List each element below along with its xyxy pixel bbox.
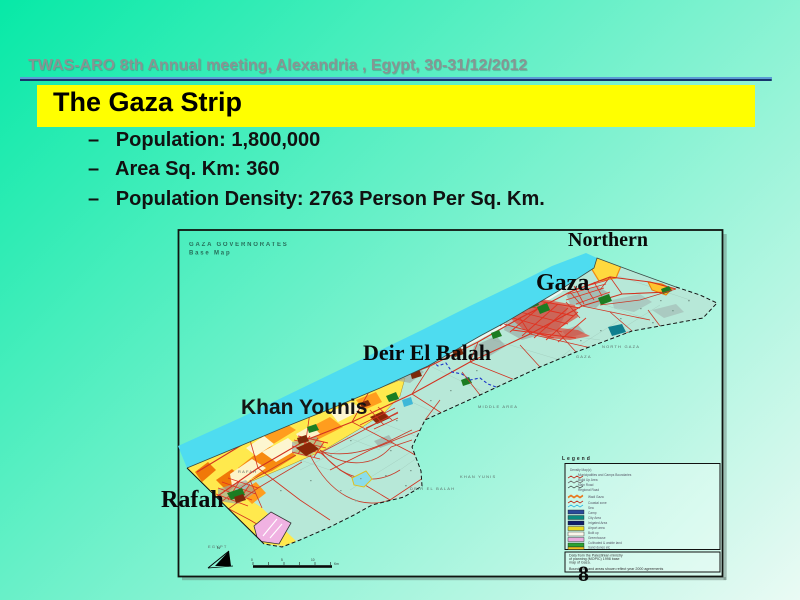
svg-text:Base Map: Base Map [189, 251, 231, 257]
svg-text:NORTH GAZA: NORTH GAZA [602, 344, 640, 349]
svg-text:Density Map(c): Density Map(c) [570, 468, 591, 472]
svg-text:Sand dunes etc: Sand dunes etc [588, 546, 611, 550]
svg-text:Deir El Balah: Deir El Balah [363, 340, 491, 365]
svg-text:Km: Km [334, 562, 339, 566]
svg-text:Build Up Area: Build Up Area [578, 478, 598, 482]
svg-text:Rafah: Rafah [161, 487, 224, 513]
svg-text:Gaza: Gaza [536, 270, 589, 296]
svg-text:GAZA: GAZA [576, 354, 592, 359]
svg-text:City Area: City Area [588, 516, 601, 520]
svg-text:Coastal zone: Coastal zone [588, 501, 607, 505]
svg-text:8: 8 [578, 561, 589, 586]
svg-text:Cultivated & arable land: Cultivated & arable land [588, 541, 622, 545]
svg-text:Northern: Northern [568, 229, 648, 251]
svg-text:MIDDLE AREA: MIDDLE AREA [478, 404, 518, 409]
svg-text:Built up: Built up [588, 531, 599, 535]
svg-text:Camp: Camp [588, 511, 597, 515]
svg-text:Khan Younis: Khan Younis [241, 396, 367, 419]
svg-text:Airport area: Airport area [588, 526, 605, 530]
svg-text:Regional Road: Regional Road [578, 488, 599, 492]
svg-text:GAZA GOVERNORATES: GAZA GOVERNORATES [189, 242, 289, 248]
svg-text:0: 0 [251, 558, 253, 562]
svg-text:Sea: Sea [588, 506, 594, 510]
svg-text:5: 5 [281, 558, 283, 562]
svg-text:Irrigated Area: Irrigated Area [588, 521, 607, 525]
svg-text:Main Road: Main Road [578, 483, 594, 487]
svg-text:N: N [217, 545, 220, 550]
svg-text:Wadi Gaza: Wadi Gaza [588, 495, 604, 499]
svg-text:Legend: Legend [562, 456, 592, 462]
svg-text:RAFAH: RAFAH [238, 469, 257, 474]
svg-text:Municipalities and Camps Bound: Municipalities and Camps Boundaries [578, 473, 632, 477]
svg-text:DEIR EL BALAH: DEIR EL BALAH [410, 486, 455, 491]
svg-text:10: 10 [311, 558, 315, 562]
svg-text:Greenhouse: Greenhouse [588, 536, 606, 540]
svg-text:KHAN YUNIS: KHAN YUNIS [460, 474, 496, 479]
